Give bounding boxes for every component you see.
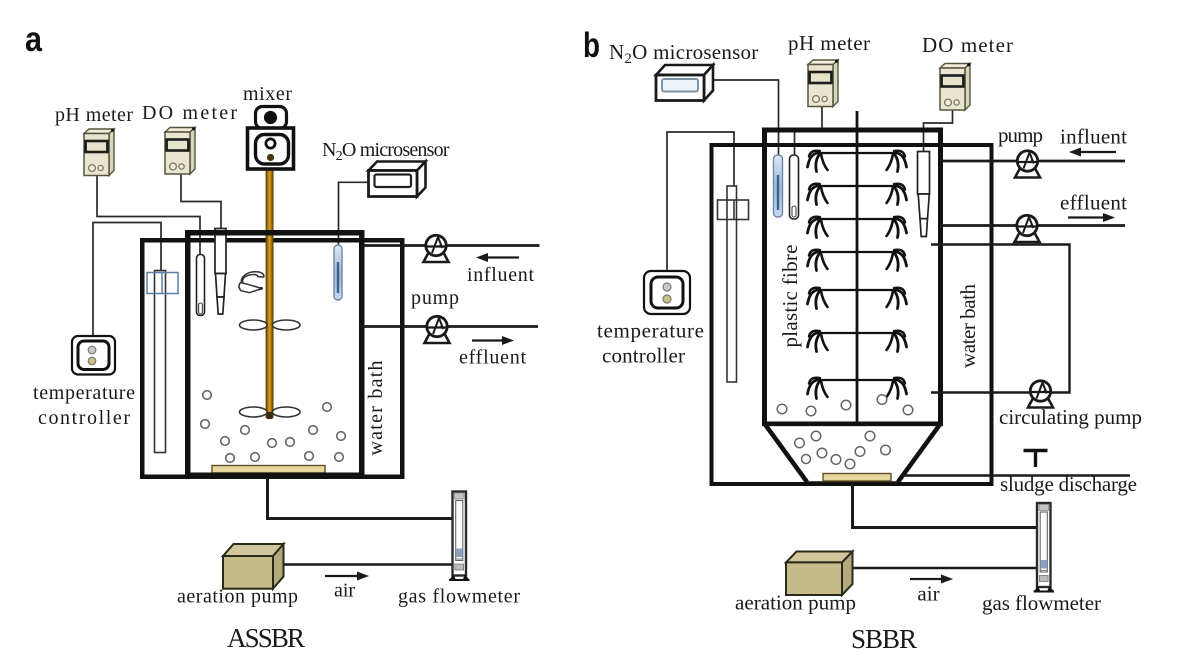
svg-text:temperature: temperature xyxy=(597,319,704,343)
svg-text:water bath: water bath xyxy=(956,284,980,369)
svg-text:controller: controller xyxy=(602,344,685,368)
svg-text:effluent: effluent xyxy=(1060,191,1127,215)
svg-text:DO meter: DO meter xyxy=(142,102,237,124)
svg-text:plastic fibre: plastic fibre xyxy=(778,245,802,348)
svg-text:influent: influent xyxy=(467,264,534,286)
svg-text:N2O microsensor: N2O microsensor xyxy=(609,40,758,67)
svg-text:pH meter: pH meter xyxy=(55,104,133,126)
svg-text:controller: controller xyxy=(38,407,130,429)
svg-text:DO meter: DO meter xyxy=(922,33,1013,57)
svg-text:water bath: water bath xyxy=(365,361,387,456)
svg-text:mixer: mixer xyxy=(243,83,292,105)
svg-text:circulating pump: circulating pump xyxy=(999,405,1142,429)
svg-text:air: air xyxy=(334,580,355,602)
svg-text:b: b xyxy=(583,26,600,65)
svg-text:pump: pump xyxy=(998,123,1043,147)
svg-text:pH meter: pH meter xyxy=(788,31,870,55)
svg-text:SBBR: SBBR xyxy=(851,624,917,654)
svg-text:sludge discharge: sludge discharge xyxy=(1000,472,1137,496)
svg-text:N2O microsensor: N2O microsensor xyxy=(322,139,450,164)
svg-text:effluent: effluent xyxy=(459,347,526,369)
svg-text:aeration pump: aeration pump xyxy=(177,586,298,608)
svg-text:air: air xyxy=(917,582,939,606)
svg-text:ASSBR: ASSBR xyxy=(227,623,305,653)
svg-text:gas flowmeter: gas flowmeter xyxy=(982,591,1101,615)
svg-text:a: a xyxy=(25,20,42,59)
svg-text:gas flowmeter: gas flowmeter xyxy=(398,586,520,608)
svg-text:temperature: temperature xyxy=(33,382,135,404)
svg-text:influent: influent xyxy=(1060,125,1127,149)
svg-text:aeration pump: aeration pump xyxy=(735,591,856,615)
svg-text:pump: pump xyxy=(411,287,459,309)
